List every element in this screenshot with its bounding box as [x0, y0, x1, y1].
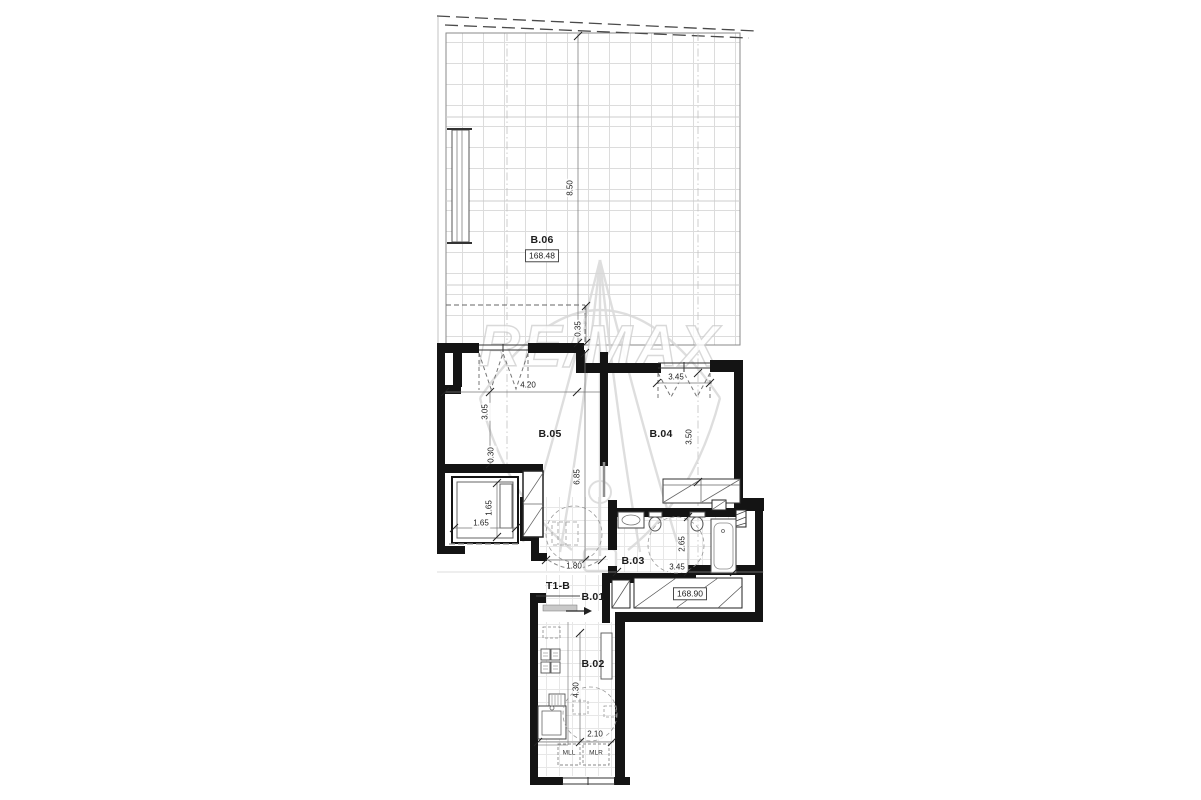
dim-wall-step: 0.30 — [488, 446, 497, 464]
floorplan-drawing: RE/MAX — [0, 0, 1201, 800]
dim-kitchen-length: 4.30 — [573, 681, 582, 699]
floorplan: RE/MAX — [0, 0, 1201, 800]
window-kitchen — [562, 777, 615, 785]
counter-icon — [601, 633, 612, 679]
dim-elevator-depth: 1.65 — [486, 499, 495, 517]
room-label-b01: B.01 — [582, 591, 605, 603]
elevation-terrace: 168.48 — [525, 249, 559, 262]
room-label-b06: B.06 — [531, 234, 554, 246]
dim-terrace-depth: 8.50 — [567, 179, 576, 197]
elevation-entry: 168.90 — [673, 587, 707, 600]
dim-kitchen-width: 2.10 — [586, 731, 604, 740]
room-label-b03: B.03 — [622, 555, 645, 567]
dim-bath-width: 3.45 — [668, 564, 686, 573]
dim-bedroom-depth: 3.50 — [686, 428, 695, 446]
appliance-label-dishwasher: MLL — [563, 750, 576, 757]
dim-living-depth: 6.85 — [574, 468, 583, 486]
technical-shaft — [523, 471, 543, 537]
room-label-b05: B.05 — [539, 428, 562, 440]
dim-skylight-offset: 0.35 — [575, 320, 584, 338]
unit-type-label: T1-B — [546, 580, 570, 592]
dim-bedroom-window: 3.45 — [667, 374, 685, 383]
dim-elevator-width: 1.65 — [472, 520, 490, 529]
bidet-icon — [690, 512, 705, 517]
room-label-b02: B.02 — [582, 658, 605, 670]
wardrobe-b04 — [663, 479, 740, 503]
room-label-b04: B.04 — [650, 428, 673, 440]
drainer-icon — [549, 694, 565, 706]
tiled-floors — [538, 497, 734, 776]
appliance-label-washer: MLR — [589, 750, 603, 757]
bathtub-icon — [711, 519, 736, 573]
dim-living-left-depth: 3.05 — [482, 403, 491, 421]
dim-hall-opening: 1.80 — [565, 563, 583, 572]
dim-bath-depth: 2.65 — [679, 535, 688, 553]
toilet-icon — [649, 512, 662, 517]
dim-living-width: 4.20 — [519, 382, 537, 391]
elevator — [449, 477, 518, 544]
